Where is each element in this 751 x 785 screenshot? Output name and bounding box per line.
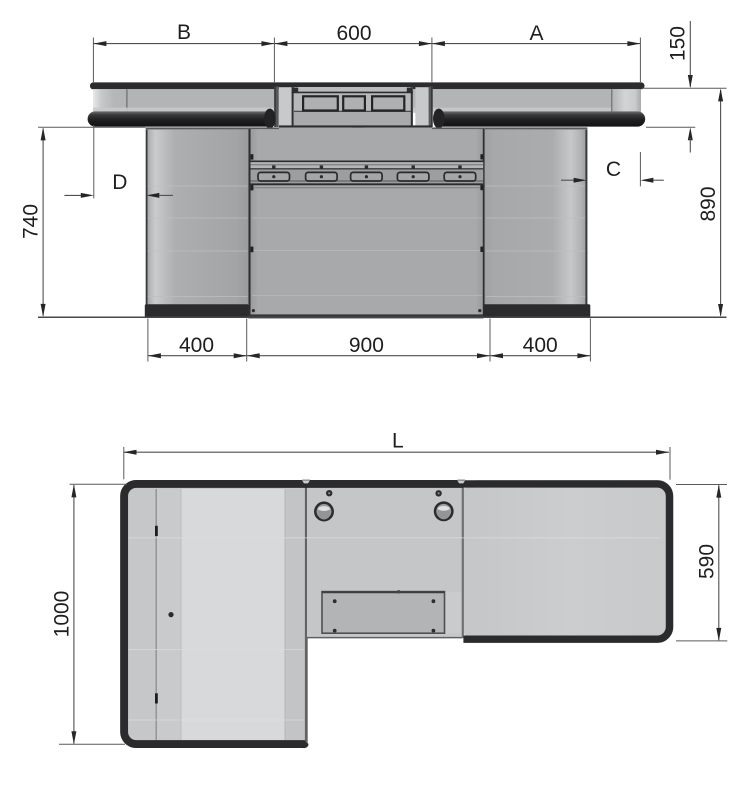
- svg-text:890: 890: [697, 186, 720, 221]
- svg-text:D: D: [112, 171, 127, 194]
- svg-text:A: A: [529, 22, 543, 45]
- svg-text:150: 150: [667, 26, 690, 61]
- svg-text:L: L: [392, 430, 404, 453]
- svg-text:1000: 1000: [51, 591, 74, 638]
- svg-text:400: 400: [179, 334, 214, 357]
- svg-text:C: C: [606, 158, 621, 181]
- svg-text:900: 900: [349, 334, 384, 357]
- svg-text:600: 600: [336, 22, 371, 45]
- svg-text:740: 740: [19, 204, 42, 239]
- svg-text:B: B: [177, 21, 191, 44]
- svg-text:590: 590: [696, 544, 719, 579]
- svg-text:400: 400: [523, 334, 558, 357]
